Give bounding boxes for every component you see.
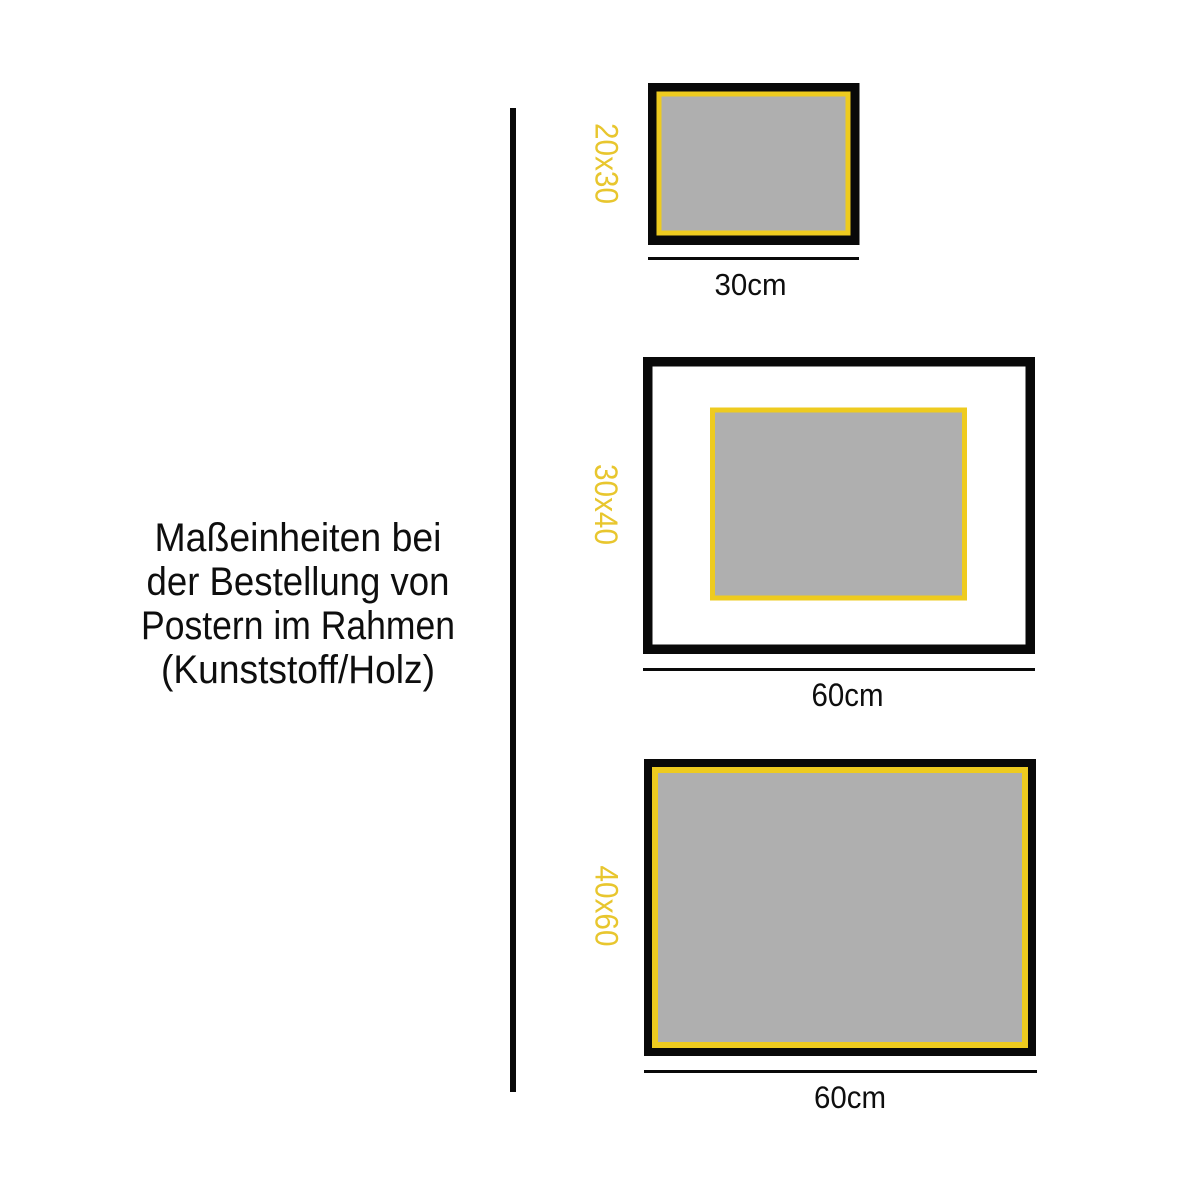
svg-text:40x60: 40x60 <box>589 866 625 947</box>
svg-text:(Kunststoff/Holz): (Kunststoff/Holz) <box>161 648 435 692</box>
svg-text:Postern im Rahmen: Postern im Rahmen <box>141 604 455 648</box>
svg-text:Maßeinheiten bei: Maßeinheiten bei <box>155 516 442 560</box>
svg-text:30x40: 30x40 <box>588 464 624 545</box>
svg-text:30cm: 30cm <box>715 268 787 302</box>
svg-text:der Bestellung von: der Bestellung von <box>147 560 450 604</box>
svg-text:60cm: 60cm <box>812 677 884 713</box>
svg-text:20x30: 20x30 <box>589 123 625 204</box>
svg-text:60cm: 60cm <box>814 1079 886 1115</box>
